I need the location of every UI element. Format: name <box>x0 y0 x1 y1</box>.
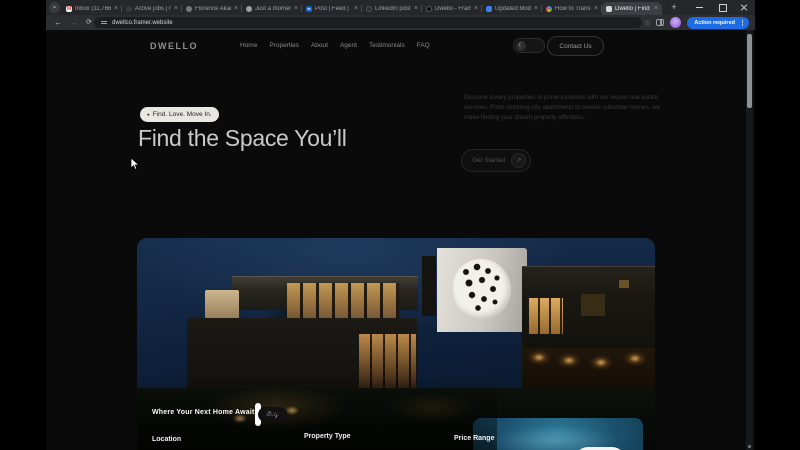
get-started-button[interactable]: Get Started ↗ <box>461 149 531 172</box>
dot-icon: ● <box>147 112 150 117</box>
nav-link-properties[interactable]: Properties <box>269 42 299 49</box>
hero-heading: Find the Space You’ll <box>138 125 347 152</box>
close-icon[interactable]: × <box>654 6 658 12</box>
listing-type-tabs: Buy Sell Rent Agents <box>255 403 261 426</box>
url-text: dwellco.framer.website <box>112 20 173 26</box>
hero-badge-label: Find. Love. Move In. <box>153 111 212 118</box>
moon-icon: ☾ <box>516 41 526 51</box>
mouse-cursor <box>130 157 140 171</box>
field-label-location[interactable]: Location <box>152 436 181 443</box>
gmail-icon: M <box>66 6 72 12</box>
globe-icon <box>246 6 252 12</box>
tab-active-jobs[interactable]: Active jobs | m × <box>122 2 182 15</box>
get-started-label: Get Started <box>472 157 505 164</box>
profile-avatar[interactable] <box>670 17 681 28</box>
tab-linkedin-feed[interactable]: in Post | Feed | Li × <box>302 2 362 15</box>
fence-light <box>527 350 551 365</box>
hero-image: Where Your Next Home Awaits Buy Sell Ren… <box>137 238 655 450</box>
hero-badge: ● Find. Love. Move In. <box>140 107 219 122</box>
close-icon[interactable]: × <box>474 6 478 12</box>
dark-circle-icon <box>366 6 372 12</box>
minimize-button[interactable] <box>693 1 707 13</box>
close-window-button[interactable] <box>737 1 751 13</box>
tab-just-a-moment[interactable]: Just a moment × <box>242 2 302 15</box>
tab-title: Inbox (11,766) <box>75 6 111 12</box>
close-icon[interactable]: × <box>294 6 298 12</box>
briefcase-icon <box>126 6 132 12</box>
tab-linkedin-post[interactable]: LinkedIn post × <box>362 2 422 15</box>
arrow-up-right-icon: ↗ <box>511 153 526 168</box>
small-window <box>619 280 629 288</box>
tab-title: LinkedIn post <box>375 6 411 12</box>
field-label-price-range[interactable]: Price Range <box>454 435 494 442</box>
bookmark-icon[interactable]: ☆ <box>644 19 650 27</box>
scrollbar-thumb[interactable] <box>747 34 752 108</box>
tab-dwello-active[interactable]: Dwello | Find Y × <box>602 2 662 15</box>
nav-link-testimonials[interactable]: Testimonials <box>369 42 405 49</box>
close-icon[interactable]: × <box>354 6 358 12</box>
linkedin-icon: in <box>306 6 312 12</box>
webpage: DWELLO Home Properties About Agent Testi… <box>46 30 755 450</box>
nav-link-home[interactable]: Home <box>240 42 257 49</box>
tabs: M Inbox (11,766) × Active jobs | m × Flo… <box>62 2 662 15</box>
dotted-art-panel <box>453 259 511 319</box>
tab-title: Updated Mod <box>495 6 531 12</box>
tab-agents[interactable]: Agents <box>258 407 292 422</box>
close-icon[interactable]: × <box>234 6 238 12</box>
close-icon[interactable]: × <box>114 6 118 12</box>
browser-window: ⌄ M Inbox (11,766) × Active jobs | m × F… <box>46 0 755 450</box>
framer-icon <box>426 6 432 12</box>
tab-inbox[interactable]: M Inbox (11,766) × <box>62 2 122 15</box>
drive-icon <box>546 6 552 12</box>
doc-icon <box>486 6 492 12</box>
dim-window <box>581 294 605 316</box>
window-controls <box>693 0 751 13</box>
field-label-property-type[interactable]: Property Type <box>304 433 351 440</box>
action-required-label: Action required <box>694 20 735 26</box>
screen: ⌄ M Inbox (11,766) × Active jobs | m × F… <box>0 0 800 450</box>
tab-how-to-transfer[interactable]: How to Transf × <box>542 2 602 15</box>
close-icon[interactable]: × <box>414 6 418 12</box>
toolbar-right: ☆ Action required ⋮ <box>644 15 749 30</box>
scrollbar-end-dot <box>748 445 751 448</box>
tab-strip: ⌄ M Inbox (11,766) × Active jobs | m × F… <box>46 0 755 15</box>
tab-updated-mod[interactable]: Updated Mod × <box>482 2 542 15</box>
hero-description: Discover luxury properties in prime loca… <box>464 93 664 123</box>
close-icon[interactable]: × <box>534 6 538 12</box>
nav-link-about[interactable]: About <box>311 42 328 49</box>
close-icon[interactable]: × <box>594 6 598 12</box>
new-tab-button[interactable]: + <box>668 2 680 14</box>
theme-toggle[interactable]: ☾ <box>513 38 545 53</box>
site-settings-icon[interactable] <box>101 20 107 25</box>
window-frames-right <box>529 298 563 334</box>
fence-light <box>589 355 613 370</box>
site-icon <box>606 6 612 12</box>
side-panel-icon[interactable] <box>656 19 664 26</box>
contact-us-label: Contact Us <box>559 43 591 50</box>
close-icon[interactable]: × <box>174 6 178 12</box>
nav-link-faq[interactable]: FAQ <box>417 42 430 49</box>
browser-toolbar: ← → ⟳ dwellco.framer.website ☆ Action re… <box>46 15 755 30</box>
profile-icon <box>186 6 192 12</box>
tab-title: How to Transf <box>555 6 591 12</box>
action-required-button[interactable]: Action required ⋮ <box>687 17 749 29</box>
tab-title: Post | Feed | Li <box>315 6 351 12</box>
tab-florence[interactable]: Florence Akai | × <box>182 2 242 15</box>
more-icon[interactable]: ⋮ <box>739 19 746 27</box>
fence-light <box>557 353 581 368</box>
contact-us-button[interactable]: Contact Us <box>547 36 604 56</box>
site-nav: Home Properties About Agent Testimonials… <box>240 42 430 49</box>
search-panel-title: Where Your Next Home Awaits <box>152 409 259 416</box>
tab-title: Dwello | Find Y <box>615 6 651 12</box>
scrollbar[interactable] <box>746 30 753 450</box>
forward-icon[interactable]: → <box>70 19 78 27</box>
maximize-button[interactable] <box>715 1 729 13</box>
back-icon[interactable]: ← <box>54 19 62 27</box>
tab-search-button[interactable]: ⌄ <box>49 2 60 13</box>
site-logo[interactable]: DWELLO <box>150 41 198 51</box>
tab-title: Active jobs | m <box>135 6 171 12</box>
chimney <box>422 256 436 316</box>
nav-link-agent[interactable]: Agent <box>340 42 357 49</box>
tab-title: Florence Akai | <box>195 6 231 12</box>
tab-title: Dwello - Fram <box>435 6 471 12</box>
tab-title: Just a moment <box>255 6 291 12</box>
fence-light <box>623 351 647 366</box>
address-bar[interactable]: dwellco.framer.website <box>94 17 642 28</box>
reload-icon[interactable]: ⟳ <box>86 19 92 27</box>
tab-dwello-framer[interactable]: Dwello - Fram × <box>422 2 482 15</box>
